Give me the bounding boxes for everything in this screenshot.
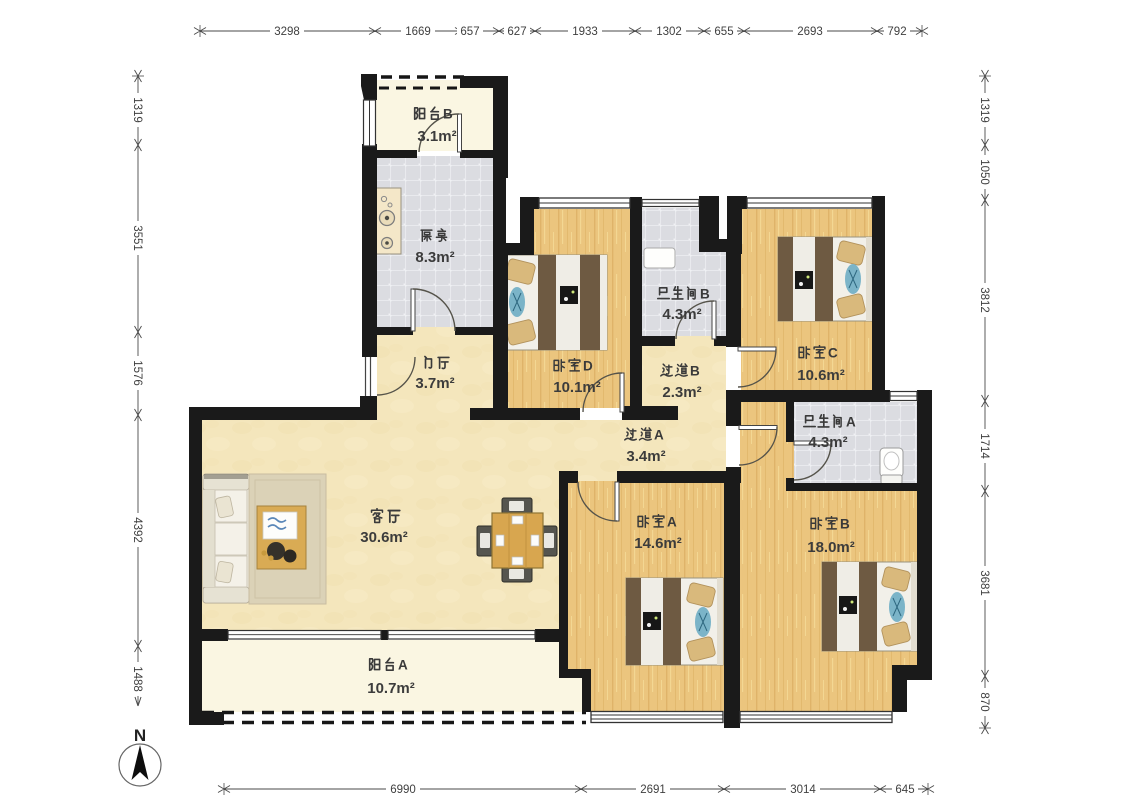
svg-text:3014: 3014 (790, 784, 816, 796)
svg-text:10.1m²: 10.1m² (553, 379, 601, 396)
svg-text:A: A (398, 658, 408, 673)
svg-text:1669: 1669 (405, 26, 431, 38)
svg-text:18.0m²: 18.0m² (807, 539, 855, 556)
svg-text:B: B (443, 107, 453, 122)
svg-text:B: B (840, 517, 850, 532)
svg-text:8.3m²: 8.3m² (415, 249, 454, 266)
svg-text:1576: 1576 (131, 360, 143, 386)
svg-text:B: B (700, 287, 710, 302)
svg-text:10.7m²: 10.7m² (367, 680, 415, 697)
svg-text:1319: 1319 (131, 97, 143, 123)
svg-text:645: 645 (895, 784, 914, 796)
svg-text:10.6m²: 10.6m² (797, 367, 845, 384)
svg-text:B: B (690, 364, 700, 379)
svg-text:657: 657 (460, 26, 479, 38)
svg-text:1488: 1488 (131, 666, 143, 692)
svg-text:4392: 4392 (131, 517, 143, 543)
svg-text:A: A (846, 415, 856, 430)
svg-text:N: N (134, 726, 146, 745)
svg-text:C: C (828, 346, 838, 361)
svg-text:1302: 1302 (656, 26, 682, 38)
svg-text:1933: 1933 (572, 26, 598, 38)
svg-text:870: 870 (978, 692, 990, 711)
svg-text:3812: 3812 (978, 287, 990, 313)
svg-text:3.7m²: 3.7m² (415, 375, 454, 392)
svg-text:3298: 3298 (274, 26, 300, 38)
svg-text:3.4m²: 3.4m² (626, 448, 665, 465)
svg-text:4.3m²: 4.3m² (808, 434, 847, 451)
svg-text:6990: 6990 (390, 784, 416, 796)
svg-text:14.6m²: 14.6m² (634, 535, 682, 552)
svg-text:1319: 1319 (978, 97, 990, 123)
svg-text:792: 792 (887, 26, 906, 38)
svg-text:2693: 2693 (797, 26, 823, 38)
svg-text:3551: 3551 (131, 225, 143, 251)
svg-text:A: A (667, 515, 677, 530)
svg-text:627: 627 (507, 26, 526, 38)
svg-text:655: 655 (714, 26, 733, 38)
svg-text:A: A (654, 428, 664, 443)
svg-text:2691: 2691 (640, 784, 666, 796)
svg-text:3681: 3681 (978, 570, 990, 596)
svg-text:2.3m²: 2.3m² (662, 384, 701, 401)
svg-text:D: D (583, 359, 593, 374)
svg-text:3.1m²: 3.1m² (417, 128, 456, 145)
svg-text:1050: 1050 (978, 159, 990, 185)
svg-text:1714: 1714 (978, 433, 990, 459)
svg-text:30.6m²: 30.6m² (360, 529, 408, 546)
svg-text:4.3m²: 4.3m² (662, 306, 701, 323)
